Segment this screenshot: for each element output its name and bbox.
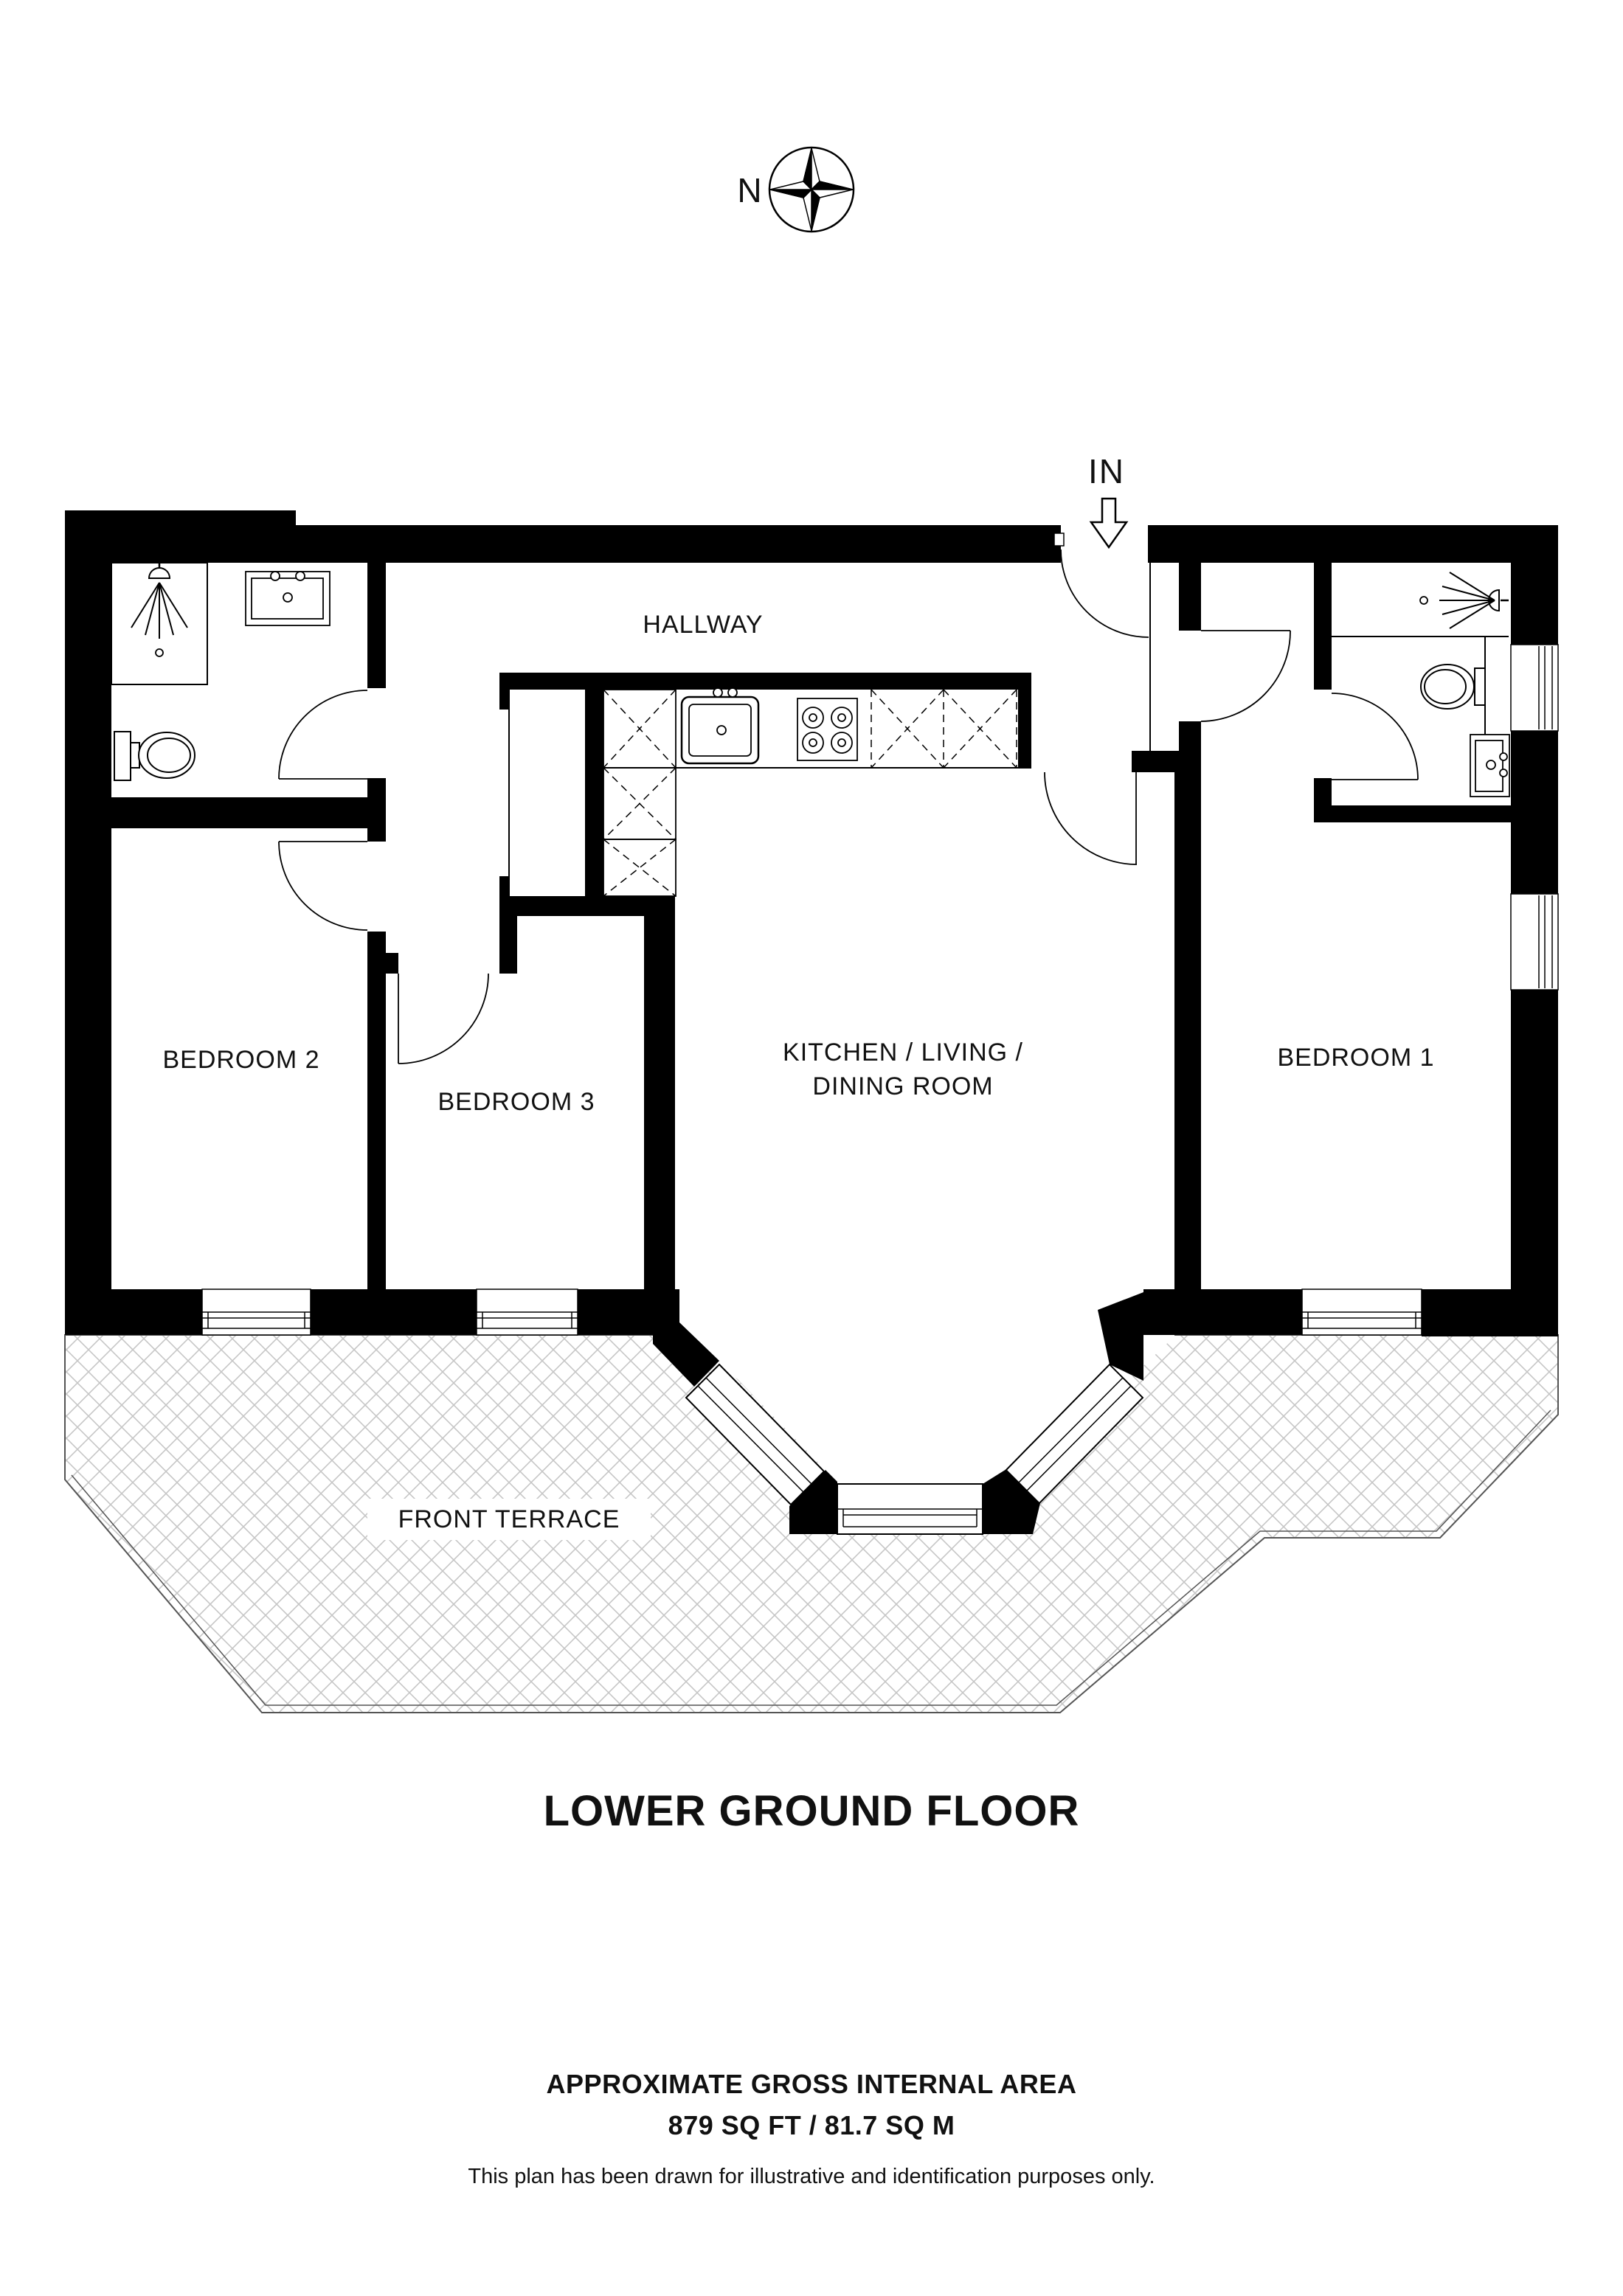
- doors: [279, 533, 1418, 1064]
- wall-bottom-seg5: [1422, 1289, 1558, 1336]
- entrance-label: IN: [1088, 452, 1125, 490]
- wall-bathroom-right-b: [367, 778, 386, 842]
- wall-bedroom2-3-divider: [367, 932, 386, 1291]
- footer: LOWER GROUND FLOOR APPROXIMATE GROSS INT…: [468, 1787, 1155, 2188]
- wall-left-outer: [65, 563, 111, 1335]
- wall-bedroom3-door-jamb: [499, 916, 517, 974]
- window-bedroom2: [202, 1289, 311, 1335]
- floor-plan-svg: N IN HALLWAY BEDROOM 2 BEDROOM 3 KITCHEN…: [0, 0, 1623, 2296]
- wall-bottom-seg1: [65, 1289, 202, 1335]
- door-kitchen-living: [1045, 772, 1137, 864]
- compass: N: [737, 148, 854, 232]
- basin-left-icon: [246, 572, 330, 625]
- area-value: 879 SQ FT / 81.7 SQ M: [668, 2110, 955, 2140]
- wall-right-outer-upper: [1511, 563, 1558, 645]
- door-bedroom3: [398, 974, 488, 1064]
- wall-top-right: [1148, 525, 1558, 563]
- label-kitchen-line2: DINING ROOM: [812, 1072, 993, 1100]
- shower-head-left-icon: [131, 563, 187, 656]
- wall-ensuite-bottom: [1314, 805, 1511, 822]
- bathroom-left: [111, 563, 330, 780]
- label-hallway: HALLWAY: [643, 611, 763, 639]
- wall-bedroom1-upper: [1179, 563, 1201, 631]
- window-bedroom3: [477, 1289, 578, 1335]
- label-bedroom2: BEDROOM 2: [162, 1046, 319, 1074]
- window-bedroom1-right: [1511, 894, 1558, 990]
- floor-plan-page: N IN HALLWAY BEDROOM 2 BEDROOM 3 KITCHEN…: [0, 0, 1623, 2296]
- basin-right-icon: [1470, 735, 1509, 797]
- kitchen-hob: [797, 698, 857, 760]
- label-bedroom1: BEDROOM 1: [1277, 1044, 1434, 1072]
- wall-bedroom3-door-stub: [386, 953, 398, 974]
- door-bedroom2: [279, 842, 367, 930]
- wall-closet-right: [585, 690, 603, 896]
- wall-bedroom3-kitchen-divider: [644, 916, 675, 1294]
- window-bedroom1-bottom: [1302, 1289, 1422, 1335]
- kitchen-sink: [682, 688, 758, 763]
- entrance-marker: IN: [1088, 452, 1127, 547]
- disclaimer-text: This plan has been drawn for illustrativ…: [468, 2165, 1155, 2188]
- toilet-right-icon: [1421, 665, 1485, 709]
- wall-ensuite-left-b: [1314, 778, 1332, 805]
- door-ensuite: [1332, 693, 1418, 780]
- wall-closet-bottom: [499, 896, 675, 916]
- label-kitchen-line1: KITCHEN / LIVING /: [783, 1038, 1023, 1067]
- toilet-left-icon: [114, 732, 195, 780]
- wall-right-outer-lower: [1511, 990, 1558, 1336]
- wall-bedroom1-mid: [1179, 721, 1201, 751]
- wall-bottom-seg2: [311, 1289, 477, 1335]
- wall-closet-stub-bottom: [499, 876, 510, 896]
- wall-kitchen-top: [499, 673, 1031, 690]
- compass-north-label: N: [737, 171, 761, 209]
- window-ensuite-right: [1511, 645, 1558, 731]
- wall-kitchen-door-header: [1132, 751, 1201, 772]
- shower-head-right-icon: [1420, 572, 1509, 628]
- wall-bathroom-bottom: [111, 797, 367, 828]
- door-entrance: [1054, 533, 1149, 637]
- wall-closet-stub-top: [499, 690, 510, 710]
- door-bedroom1: [1201, 631, 1290, 721]
- windows: [202, 645, 1558, 1335]
- wall-ensuite-left-a: [1314, 563, 1332, 690]
- bay-window-centre: [837, 1484, 983, 1534]
- wall-top-middle: [296, 525, 1061, 563]
- wall-bathroom-right-a: [367, 563, 386, 688]
- door-bathroom: [279, 690, 367, 779]
- label-bedroom3: BEDROOM 3: [437, 1088, 595, 1116]
- wall-right-outer-middle: [1511, 731, 1558, 894]
- kitchen-units: [603, 688, 1031, 896]
- label-front-terrace: FRONT TERRACE: [398, 1505, 620, 1533]
- wall-top-left: [65, 510, 296, 563]
- wall-kitchen-end-stub: [1018, 690, 1031, 768]
- walls: [65, 510, 1558, 1336]
- wall-bottom-seg3: [578, 1289, 679, 1335]
- area-heading: APPROXIMATE GROSS INTERNAL AREA: [547, 2069, 1077, 2099]
- wall-bedroom1-lower: [1174, 772, 1201, 1294]
- entrance-arrow-icon: [1091, 499, 1127, 547]
- ensuite-right: [1420, 572, 1509, 797]
- compass-rose-icon: [770, 148, 853, 231]
- page-title: LOWER GROUND FLOOR: [544, 1787, 1080, 1835]
- wall-bottom-seg4: [1143, 1289, 1302, 1335]
